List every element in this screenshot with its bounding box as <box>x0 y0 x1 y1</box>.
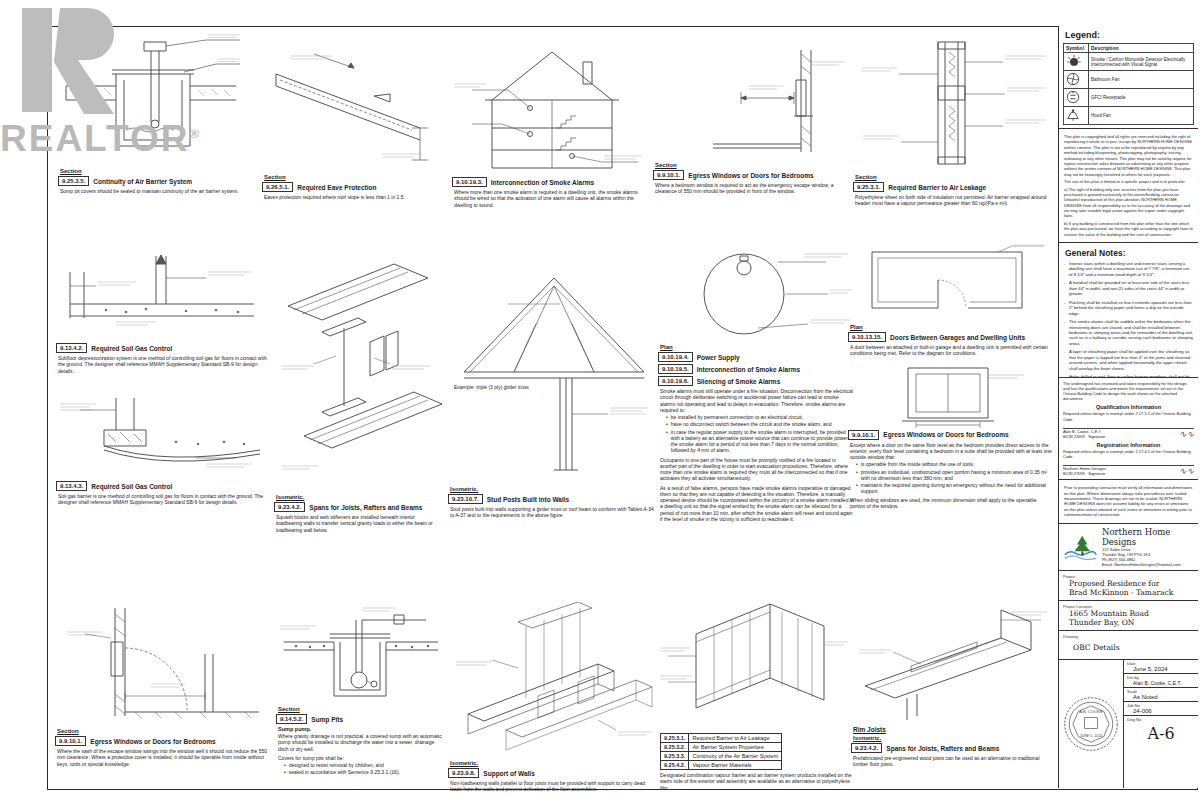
legend-desc: Bathroom Fan <box>1089 71 1194 89</box>
house-section-drawing <box>452 32 652 176</box>
detail-caption: Designated combination vapour barrier an… <box>660 772 852 791</box>
joist-beam-isometric-drawing <box>274 246 442 492</box>
code-box: 9.23.9.8. <box>448 768 479 778</box>
detail-title: Stud Posts Built into Walls <box>487 496 569 503</box>
code-box: 9.13.4.2. <box>56 343 87 353</box>
view-label: Plan <box>660 344 854 350</box>
bullet-item: •have no disconnect switch between the c… <box>666 421 854 427</box>
general-note: The smoke alarms shall be audible within… <box>1069 319 1194 346</box>
field-drawn-by: Drn by Alan B. Cooke, C.E.T. <box>1124 674 1198 688</box>
general-note: A layer of sheathing paper shall be appl… <box>1069 349 1194 371</box>
copyright-paragraph: b) If any building is constructed from t… <box>1064 221 1193 237</box>
disclaimer-text: Prior to proceeding contractor must veri… <box>1064 485 1193 517</box>
egress-intro: Except where a door on the same floor le… <box>850 442 1052 461</box>
legend-col-description: Description <box>1089 44 1194 53</box>
detail-egress-window-well: Section 9.9.10.1. Egress Windows or Door… <box>55 598 269 767</box>
soil-gas-barrier-footing-drawing <box>56 392 268 480</box>
detail-title: Spans for Joists, Rafters and Beams <box>309 504 422 511</box>
detail-caption: Eaves protection required where roof slo… <box>264 194 437 200</box>
detail-title: Support of Walls <box>483 770 534 777</box>
smoke-alarm-plan-drawing <box>658 244 854 342</box>
detail-title: Required Soil Gas Control <box>91 483 172 490</box>
drawing-title: OBC Details <box>1073 643 1194 652</box>
bullet-item: •sealed in accordance with Sentence 9.25… <box>284 769 444 775</box>
stamp-seal-icon: A.B. COOKE JUNE 5, 2024 <box>1062 695 1120 753</box>
detail-title: Power Supply <box>697 354 740 361</box>
detail-title-row: 9.23.4.2. Spans for Joists, Rafters and … <box>274 502 442 512</box>
code-box: 9.9.10.1. <box>653 170 684 180</box>
smoke-alarm-paragraph: Occupants in one part of the house must … <box>660 457 854 482</box>
legend-desc: GFCI Receptacle <box>1089 89 1194 107</box>
view-label: Section <box>855 174 1053 180</box>
code-box: 9.10.19.3. <box>452 177 487 187</box>
legend-title: Legend: <box>1065 30 1194 40</box>
code-box: 9.23.4.2. <box>274 502 305 512</box>
general-note: Flashing shall be installed so that it e… <box>1069 300 1194 316</box>
truss-example-note: Example: triple (3 ply) girder truss <box>454 384 532 390</box>
detail-title-row: 9.13.4.3. Required Soil Gas Control <box>56 481 268 491</box>
disclaimer-section: Prior to proceeding contractor must veri… <box>1059 480 1198 523</box>
view-label: Section <box>57 728 269 734</box>
firm-section: Northern Home Designs 121 Sabin Drive Th… <box>1059 524 1198 572</box>
bullet-item: •maintains the required opening during a… <box>856 482 1052 495</box>
copyright-section: This plan is copyrighted and all rights … <box>1059 129 1198 243</box>
field-scale: Scale As Noted <box>1124 688 1198 702</box>
code-box: 9.10.19.4. <box>658 352 693 362</box>
detail-stud-posts: Example: triple (3 ply) girder truss Iso… <box>448 244 658 519</box>
drawing-sheet: REALTOR® Section 9.25.3.5. Continuity of… <box>0 0 1200 804</box>
code-box: 9.10.13.15. <box>848 332 886 342</box>
detail-caption: Where a bedroom window is required to ac… <box>655 182 853 195</box>
legend-desc: Smoke / Carbon Monoxide Detector Electri… <box>1089 53 1194 71</box>
detail-sump-pits: Section 9.14.5.2. Sump Pits Sump pump. W… <box>276 598 444 777</box>
detail-rim-joists: Rim Joists Isometric. 9.23.4.2. Spans fo… <box>851 590 1055 768</box>
legend-table: Symbol Description Smoke / Carbon Monoxi… <box>1063 43 1194 125</box>
smoke-co-detector-icon <box>1066 54 1082 68</box>
detail-title: Doors Between Garages and Dwelling Units <box>890 334 1025 341</box>
detail-air-leakage-barrier: Section 9.25.3.1. Required Barrier to Ai… <box>853 34 1053 207</box>
view-label: Isometric. <box>276 494 442 500</box>
detail-garage-doors: Plan 9.10.13.15. Doors Between Garages a… <box>848 244 1052 509</box>
rim-joists-heading: Rim Joists <box>853 726 1055 733</box>
detail-eave-protection: Section 9.26.5.1. Required Eave Protecti… <box>262 36 437 200</box>
detail-smoke-alarm-interconnection: 9.10.19.3. Interconnection of Smoke Alar… <box>452 32 652 208</box>
qualification-signature-row: Alan B. Cooke, C.E.T. BCIN 22093 Signatu… <box>1063 428 1194 439</box>
copyright-paragraph: a) The right of building only one struct… <box>1064 187 1193 219</box>
bullet-item: •is openable from the inside without the… <box>856 461 1052 467</box>
wall-corner-isometric-drawing <box>658 590 852 732</box>
detail-support-of-walls: Isometric. 9.23.9.8. Support of Walls No… <box>448 602 658 793</box>
wall-assembly-section-drawing <box>853 34 1053 172</box>
smoke-alarm-paragraph: As a result of false alarms, persons hav… <box>660 485 854 523</box>
view-label: Section <box>60 168 243 174</box>
view-label: Section <box>278 706 444 712</box>
firm-bcin: BCIN 27099 <box>1063 471 1085 476</box>
detail-caption: Stud posts built into walls supporting a… <box>450 506 658 519</box>
detail-title: Spans for Joists, Rafters and Beams <box>886 745 999 752</box>
svg-text:JUNE 5, 2024: JUNE 5, 2024 <box>1080 734 1102 738</box>
svg-text:A.B. COOKE: A.B. COOKE <box>1079 709 1103 714</box>
detail-caption: Prefabricated pre-engineered wood joists… <box>853 755 1055 768</box>
detail-soil-gas-depressurization: 9.13.4.2. Required Soil Gas Control Subf… <box>56 242 268 374</box>
detail-title-row: 9.14.5.2. Sump Pits <box>276 714 444 724</box>
smoke-alarm-intro: Smoke alarms must still operate under a … <box>660 388 854 413</box>
detail-title: Required Barrier to Air Leakage <box>888 184 986 191</box>
legend-col-symbol: Symbol <box>1064 44 1089 53</box>
detail-title: Egress Windows or Doors for Bedrooms <box>883 431 1008 438</box>
drawing-label: Drawing <box>1063 634 1194 639</box>
legend-desc: Hood Fan <box>1089 107 1194 125</box>
code-box: 9.25.3.1. <box>853 182 884 192</box>
copyright-paragraph: This plan is copyrighted and all rights … <box>1064 134 1193 177</box>
detail-title-row: 9.26.5.1. Required Eave Protection <box>262 182 437 192</box>
copyright-paragraph: The use of this plan is limited to a spe… <box>1064 179 1193 184</box>
garage-plan-drawing <box>848 244 1052 322</box>
covers-label: Covers for sump pits shall be: <box>278 755 444 761</box>
detail-egress-window-clearance: Section 9.9.10.1. Egress Windows or Door… <box>653 42 853 195</box>
view-label: Isometric. <box>853 735 1055 741</box>
signature-label: Signature <box>1088 471 1105 476</box>
detail-title: Continuity of Air Barrier System <box>93 178 192 185</box>
titleblock-fields: Date June 5, 2024 Drn by Alan B. Cooke, … <box>1124 660 1198 788</box>
detail-caption: Soil gas barrier is one method of contro… <box>58 493 268 506</box>
designer-bcin: BCIN 22093 <box>1063 434 1085 439</box>
code-box: 9.9.10.1. <box>848 430 879 440</box>
view-label: Section <box>264 174 437 180</box>
girder-truss-isometric-drawing <box>448 244 658 484</box>
eave-section-drawing <box>262 36 437 172</box>
detail-caption: A door between an attached or built-in g… <box>850 344 1052 357</box>
view-label: Isometric. <box>450 486 658 492</box>
detail-caption: Squash blocks and web stiffeners are ins… <box>276 514 442 533</box>
detail-title-row: 9.23.10.7. Stud Posts Built into Walls <box>448 494 658 504</box>
attestation-statement: The undersigned has reviewed and takes r… <box>1063 381 1194 402</box>
project-location: 1665 Mountain RoadThunder Bay, ON <box>1069 609 1194 627</box>
sump-pump-subhead: Sump pump. <box>278 726 444 732</box>
legend-section: Legend: Symbol Description Smoke / Carbo… <box>1059 26 1198 129</box>
detail-smoke-alarm-requirements: Plan 9.10.19.4.Power Supply 9.10.19.5.In… <box>658 244 854 522</box>
detail-caption: Where more than one smoke alarm is requi… <box>454 189 652 208</box>
code-box: 9.26.5.1. <box>262 182 293 192</box>
detail-caption: Non-loadbearing walls parallel to floor … <box>450 780 658 793</box>
project-name: Proposed Residence forBrad McKinnon - Ta… <box>1069 579 1194 597</box>
sheet-number: A-6 <box>1127 724 1195 743</box>
sump-pump-section-drawing <box>276 598 444 704</box>
detail-title-row: 9.10.13.15. Doors Between Garages and Dw… <box>848 332 1052 342</box>
detail-title-row: 9.9.10.1. Egress Windows or Doors for Be… <box>653 170 853 180</box>
detail-title: Interconnection of Smoke Alarms <box>697 366 800 373</box>
egress-window-section-drawing <box>653 42 853 160</box>
registration-heading: Registration Information <box>1063 442 1194 448</box>
view-label: Plan <box>850 324 1052 330</box>
qualification-requirement: Required unless design is exempt under 2… <box>1063 411 1194 421</box>
code-box: 9.23.10.7. <box>448 494 483 504</box>
code-box: 9.25.3.5. <box>58 176 89 186</box>
bullet-item: •designed to resist removal by children,… <box>284 762 444 768</box>
field-job-number: Job No 24-006 <box>1124 702 1198 716</box>
air-barrier-code-table: 9.25.3.1.Required Barrier to Air Leakage… <box>660 733 782 770</box>
detail-title-row: 9.25.3.5. Continuity of Air Barrier Syst… <box>58 176 243 186</box>
subfloor-depressurization-drawing <box>56 242 268 342</box>
field-drawing-number: Dwg No A-6 <box>1124 716 1198 788</box>
detail-squash-blocks: Isometric. 9.23.4.2. Spans for Joists, R… <box>274 246 442 533</box>
detail-soil-gas-barrier: 9.13.4.3. Required Soil Gas Control Soil… <box>56 392 268 506</box>
detail-title: Required Soil Gas Control <box>91 345 172 352</box>
hood-fan-icon <box>1066 108 1080 122</box>
detail-title-row: 9.23.4.2. Spans for Joists, Rafters and … <box>851 743 1055 753</box>
registration-requirement: Required unless design is exempt under 2… <box>1063 449 1194 459</box>
view-label: Section <box>655 162 853 168</box>
firm-name: Northern Home Designs <box>1102 527 1194 547</box>
sump-pit-section-drawing <box>58 34 243 166</box>
floor-joists-isometric-drawing <box>448 602 658 758</box>
bullet-item: •be installed by permanent connection to… <box>666 414 854 420</box>
detail-caption: Sump pit covers should be sealed to main… <box>60 188 243 194</box>
detail-caption: Where gravity drainage is not practical,… <box>278 733 444 752</box>
bullet-item: •provides an individual, unobstructed op… <box>856 469 1052 482</box>
general-note: Interior stairs within a dwelling unit a… <box>1069 261 1194 277</box>
registration-signature-row: Northern Home Designs BCIN 27099 Signatu… <box>1063 465 1194 476</box>
detail-title: Egress Windows or Doors for Bedrooms <box>688 172 813 179</box>
gfci-receptacle-icon <box>1066 90 1080 104</box>
title-block-panel: Legend: Symbol Description Smoke / Carbo… <box>1058 26 1198 788</box>
view-label: Isometric. <box>450 760 658 766</box>
titleblock-bottom-row: A.B. COOKE JUNE 5, 2024 Date June 5, 202… <box>1059 660 1198 788</box>
code-box: 9.23.4.2. <box>851 743 882 753</box>
code-box: 9.10.19.5. <box>658 364 693 374</box>
professional-stamp: A.B. COOKE JUNE 5, 2024 <box>1059 660 1124 788</box>
detail-title: Sump Pits <box>311 716 343 723</box>
rim-joist-isometric-drawing <box>851 590 1055 724</box>
detail-caption: Polyethylene sheet on both side of insul… <box>855 194 1053 207</box>
general-note: A handrail shall be provided on at least… <box>1069 280 1194 296</box>
general-notes-section: General Notes: Interior stairs within a … <box>1059 243 1198 378</box>
detail-title: Interconnection of Smoke Alarms <box>491 179 594 186</box>
window-well-swing-drawing <box>55 598 269 726</box>
detail-title: Egress Windows or Doors for Bedrooms <box>90 738 215 745</box>
qualification-section: The undersigned has reviewed and takes r… <box>1059 378 1198 481</box>
signature-glyph: ∿∿ <box>1179 466 1194 476</box>
detail-vapour-air-barrier-table: 9.25.3.1.Required Barrier to Air Leakage… <box>658 590 852 791</box>
detail-caption: Where the sash of the escape window swin… <box>57 748 269 767</box>
signature-glyph: ∿∿ <box>1179 429 1194 439</box>
firm-logo-icon <box>1063 530 1098 564</box>
detail-title: Silencing of Smoke Alarms <box>697 378 781 385</box>
qualification-heading: Qualification Information <box>1063 404 1194 410</box>
detail-title: Required Eave Protection <box>297 184 376 191</box>
code-box: 9.13.4.3. <box>56 481 87 491</box>
egress-note: When sliding windows are used, the minim… <box>850 497 1052 510</box>
code-box: 9.10.19.6. <box>658 376 693 386</box>
bullet-item: •in case the regular power supply to the… <box>666 429 854 454</box>
detail-title-row: 9.9.10.1. Egress Windows or Doors for Be… <box>848 430 1052 440</box>
egress-window-elevation-drawing <box>848 363 1052 429</box>
detail-title-row: 9.13.4.2. Required Soil Gas Control <box>56 343 268 353</box>
signature-label: Signature <box>1088 434 1105 439</box>
detail-title-row: 9.23.9.8. Support of Walls <box>448 768 658 778</box>
detail-title-row: 9.25.3.1. Required Barrier to Air Leakag… <box>853 182 1053 192</box>
detail-title-row: 9.9.10.1. Egress Windows or Doors for Be… <box>55 736 269 746</box>
field-date: Date June 5, 2024 <box>1124 660 1198 674</box>
drawing-title-section: Drawing OBC Details <box>1059 631 1198 660</box>
project-section: Project Proposed Residence forBrad McKin… <box>1059 571 1198 601</box>
detail-caption: Subfloor depressurization system is one … <box>58 355 268 374</box>
code-box: 9.9.10.1. <box>55 736 86 746</box>
project-location-section: Project Location 1665 Mountain RoadThund… <box>1059 601 1198 631</box>
detail-title-row: 9.10.19.3. Interconnection of Smoke Alar… <box>452 177 652 187</box>
general-notes-title: General Notes: <box>1065 248 1194 258</box>
code-box: 9.14.5.2. <box>276 714 307 724</box>
detail-sump-pit-air-barrier: Section 9.25.3.5. Continuity of Air Barr… <box>58 34 243 194</box>
firm-email: Email: NorthernHomeDesigns@hotmail.com <box>1102 562 1181 567</box>
bathroom-fan-icon <box>1066 72 1080 86</box>
